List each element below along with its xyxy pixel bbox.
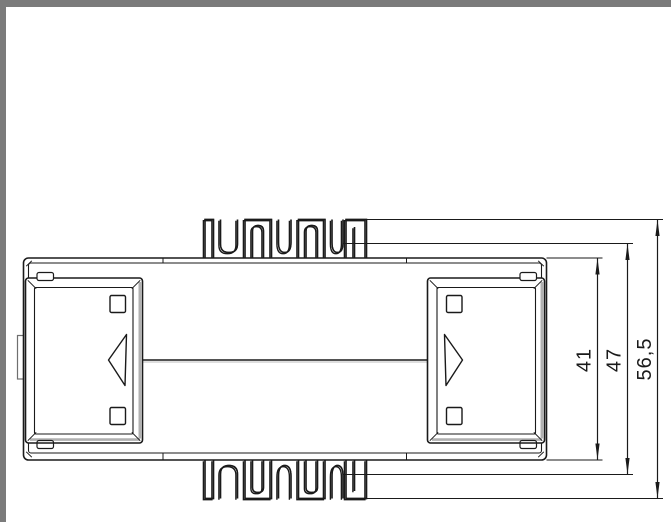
dimension-47-label: 47 xyxy=(604,348,626,372)
top-mounting-tabs xyxy=(203,220,366,260)
left-terminal-cover xyxy=(26,278,143,443)
dimension-56-5-label: 56,5 xyxy=(634,338,656,381)
clip-top-right xyxy=(520,273,537,281)
clip-top-left xyxy=(37,273,54,281)
dimension-41-label: 41 xyxy=(574,348,596,372)
dimension-41: 41 xyxy=(547,258,603,460)
bottom-mounting-tabs xyxy=(203,460,366,500)
right-terminal-cover xyxy=(428,278,545,443)
drawing-sheet: 41 47 56,5 xyxy=(0,0,671,522)
technical-drawing: 41 47 56,5 xyxy=(0,0,671,522)
